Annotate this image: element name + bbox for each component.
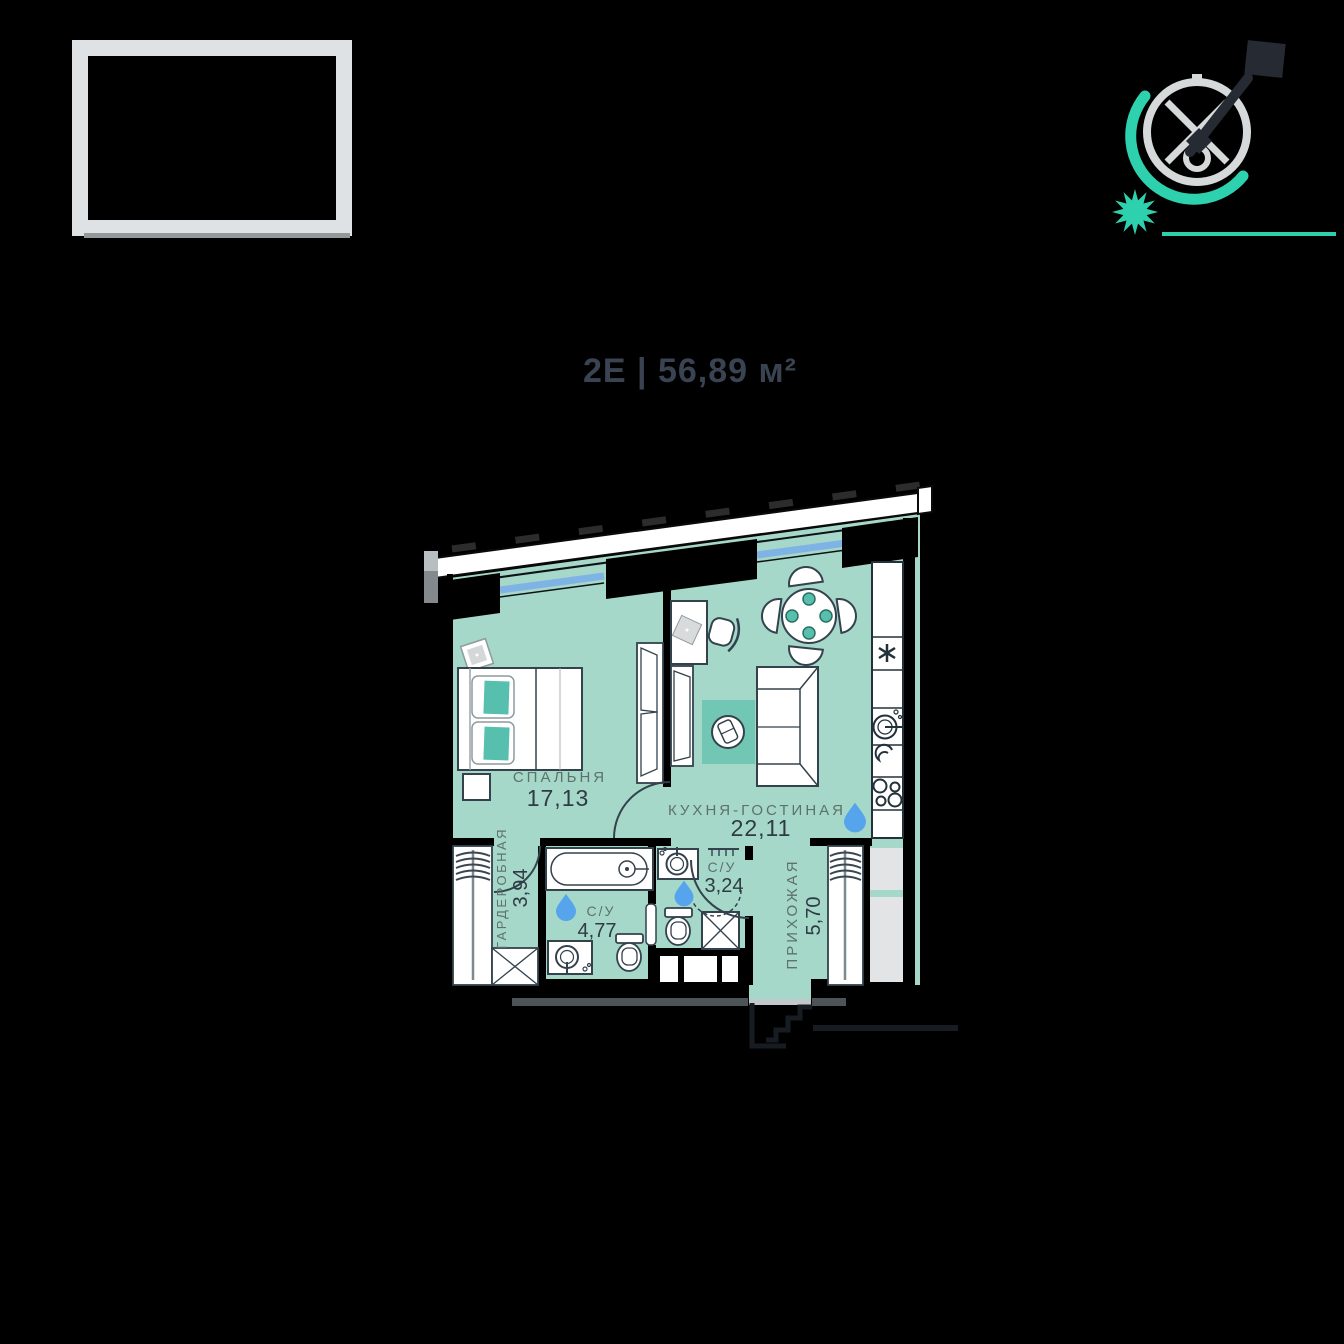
compass-underline	[1162, 232, 1336, 236]
room-area: 4,77	[578, 920, 617, 942]
sun-icon	[1112, 189, 1158, 235]
room-name: ГАРДЕРОБНАЯ	[494, 827, 509, 949]
room-area: 3,24	[705, 875, 744, 897]
floor-plan-canvas: СПАЛЬНЯ 17,13 КУХНЯ-ГОСТИНАЯ 22,11 ГАРДЕ…	[0, 0, 1344, 1344]
room-area: 3,94	[510, 869, 532, 908]
facade-band-cap	[918, 486, 932, 514]
pillow	[483, 727, 509, 761]
floor-plan-page: { "header": { "plan_title": "2Е | 56,89 …	[0, 0, 1344, 1344]
double-bed	[458, 668, 582, 770]
external-shafts	[870, 848, 903, 982]
kitchen-counter	[872, 562, 903, 838]
duct-shafts	[660, 956, 738, 982]
north-flag-icon	[1244, 40, 1285, 78]
sofa	[757, 667, 818, 786]
hallway-closet-rail	[828, 846, 863, 985]
desk	[671, 601, 707, 664]
room-area: 22,11	[731, 815, 792, 841]
balcony-column	[424, 551, 438, 571]
wardrobe-rail	[453, 846, 492, 985]
wc-toilet	[665, 908, 692, 945]
entry-door-icon	[752, 1003, 958, 1046]
room-name: СПАЛЬНЯ	[513, 769, 607, 786]
room-area: 5,70	[803, 897, 825, 936]
coffee-table	[712, 716, 744, 748]
bathroom-sink	[548, 941, 592, 974]
room-area: 17,13	[527, 785, 590, 811]
room-name: ПРИХОЖАЯ	[784, 858, 801, 969]
entry-threshold	[749, 999, 811, 1005]
washing-machine	[702, 912, 739, 949]
room-name: С/У	[708, 859, 737, 875]
balcony-column-lower	[424, 571, 438, 603]
wardrobe-cabinet	[492, 948, 538, 985]
living-wardrobe	[671, 666, 693, 766]
bathroom-door-leaf	[646, 904, 656, 945]
bedroom-wardrobe	[637, 643, 663, 783]
toilet	[616, 934, 643, 971]
compass-icon	[1112, 40, 1336, 236]
room-name: С/У	[587, 903, 616, 919]
pillow	[483, 681, 509, 715]
bathtub	[546, 848, 653, 890]
nightstand	[463, 774, 490, 800]
